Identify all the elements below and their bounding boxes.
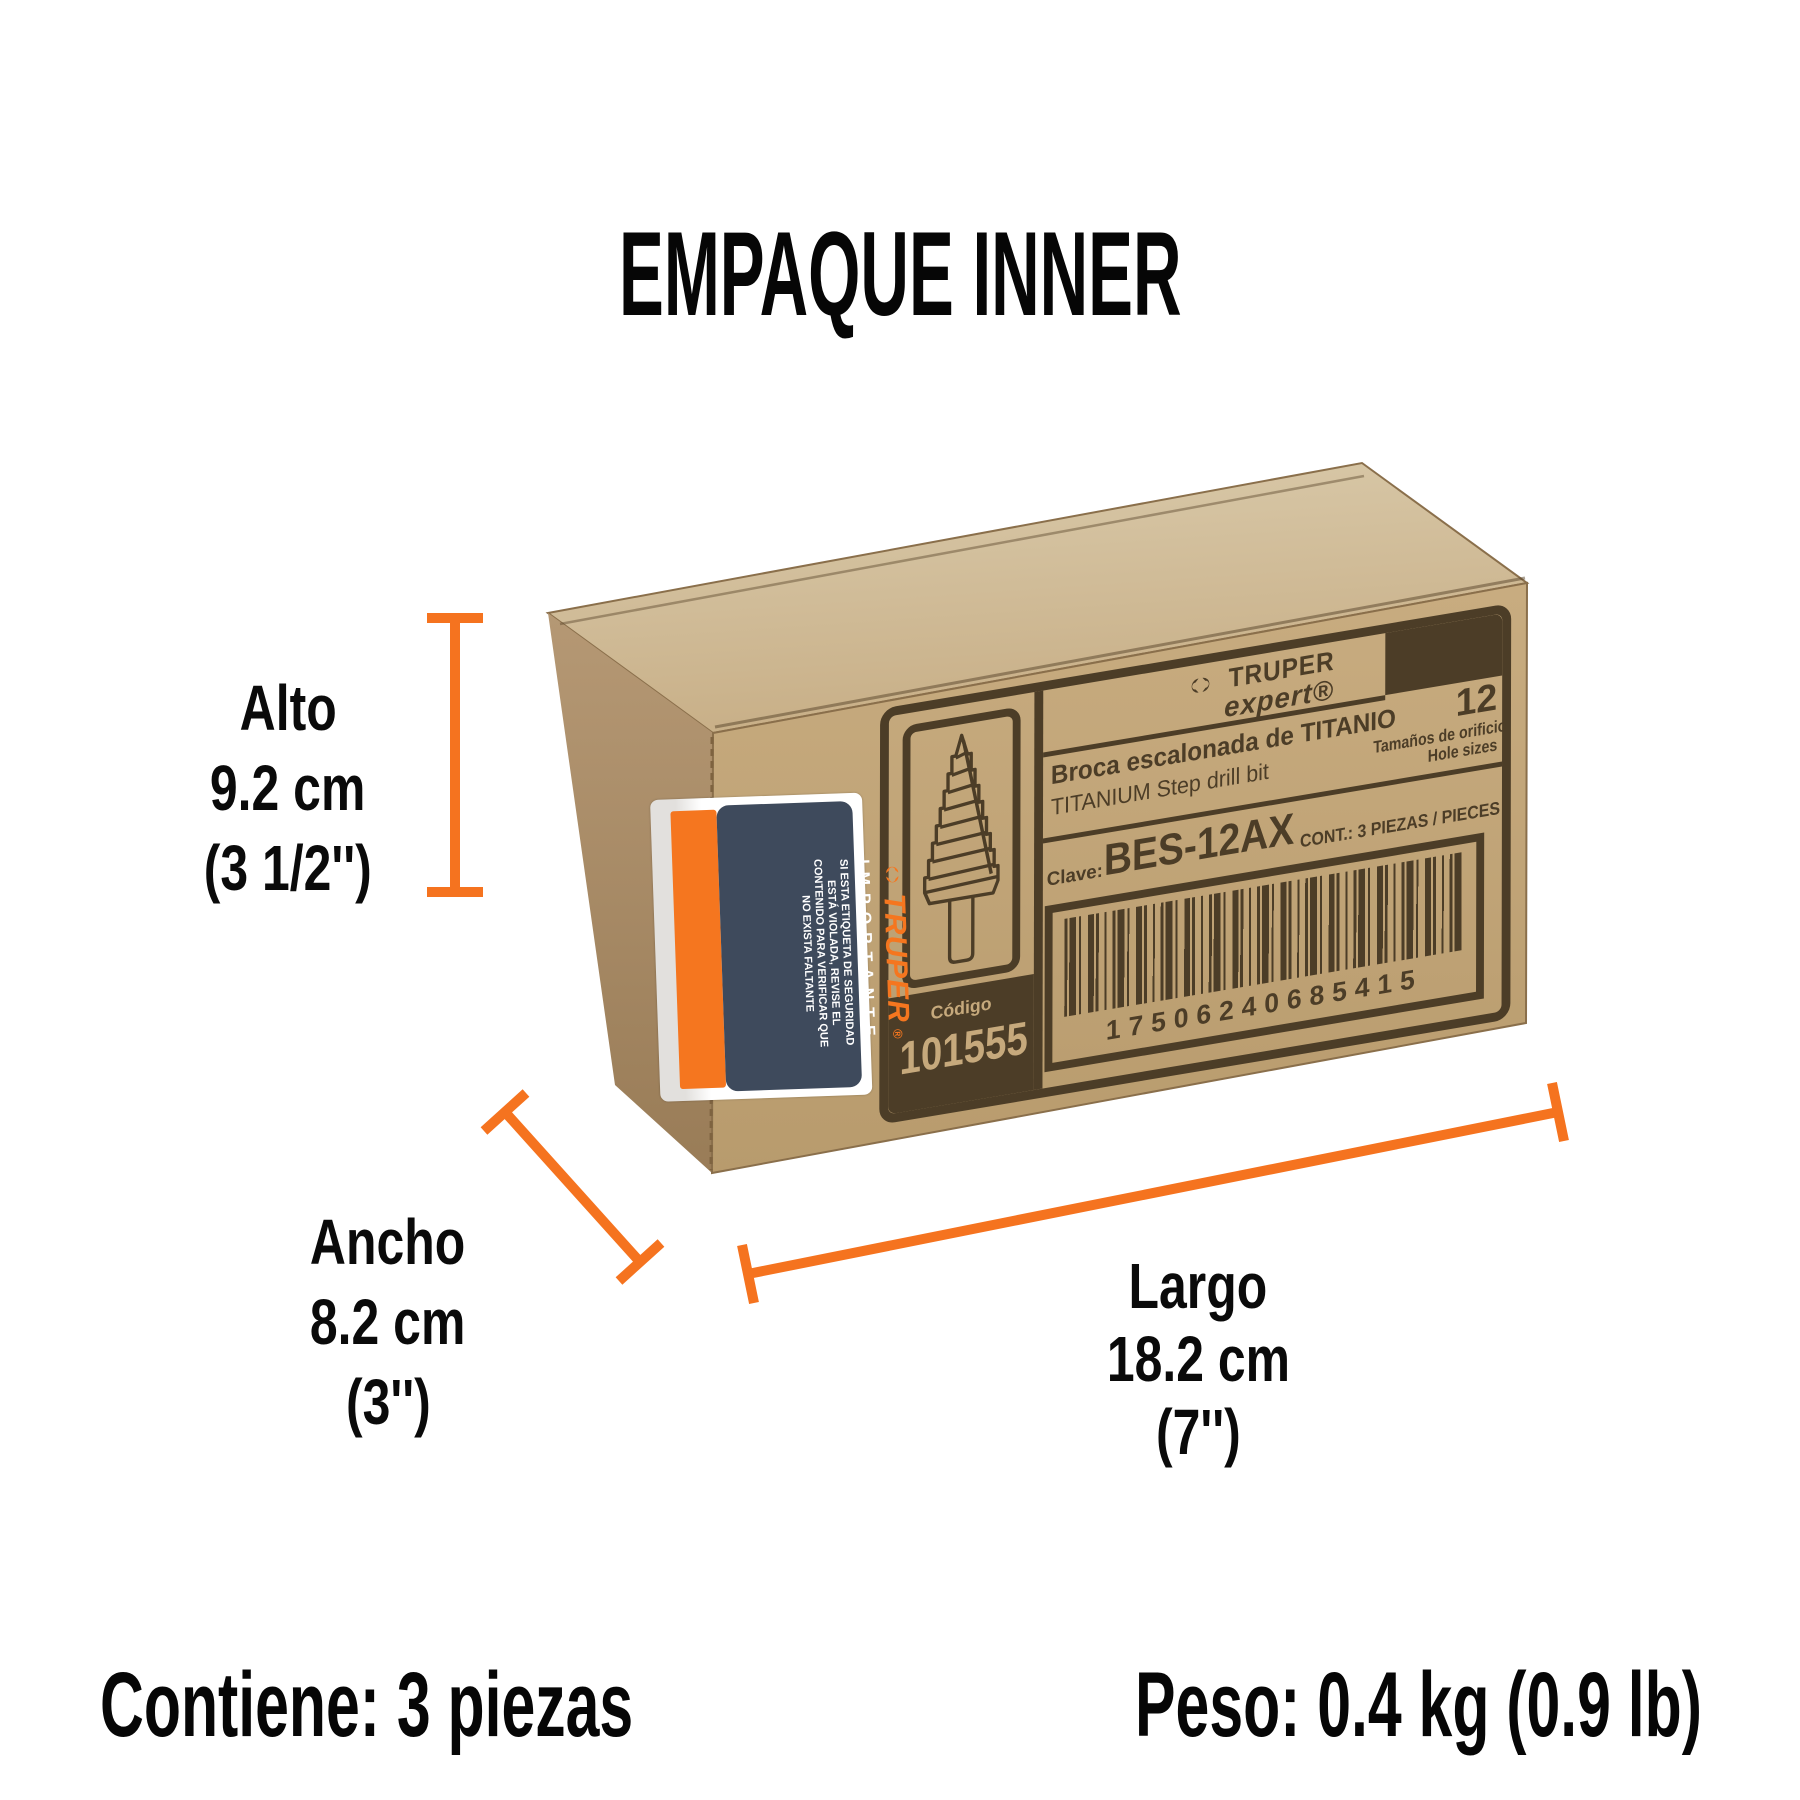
ancho-value-in: (3''): [346, 1362, 431, 1442]
weight-value: 0.4 kg (0.9 lb): [1317, 1654, 1702, 1756]
sticker-brand-name: TRUPER: [878, 893, 912, 1023]
packaging-dimensions-figure: EMPAQUE INNER: [0, 0, 1800, 1800]
sticker-reg-mark: ®: [892, 1029, 905, 1040]
ancho-label: Ancho: [310, 1202, 465, 1282]
alto-dimension-label: Alto 9.2 cm (3 1/2''): [118, 668, 458, 908]
alto-label: Alto: [239, 668, 336, 748]
weight-text: Peso: 0.4 kg (0.9 lb): [843, 1655, 1702, 1756]
sticker-navy-panel: TRUPER® IMPORTANTE SI ESTA ETIQUETA DE S…: [716, 801, 862, 1092]
label-right-column: TRUPER expert® Broca escalonada de TITAN…: [1042, 614, 1502, 1089]
ancho-value-cm: 8.2 cm: [310, 1282, 465, 1362]
sticker-brand-logo: TRUPER®: [877, 861, 913, 1040]
security-sticker: TRUPER® IMPORTANTE SI ESTA ETIQUETA DE S…: [650, 793, 872, 1102]
largo-value-cm: 18.2 cm: [1106, 1323, 1289, 1396]
sticker-warning-text: SI ESTA ETIQUETA DE SEGURIDAD ESTÁ VIOLA…: [797, 858, 856, 1048]
alto-value-cm: 9.2 cm: [210, 748, 365, 828]
sticker-rotated-content: TRUPER® IMPORTANTE SI ESTA ETIQUETA DE S…: [782, 807, 928, 1098]
largo-dimension-label: Largo 18.2 cm (7''): [998, 1250, 1398, 1469]
largo-value-in: (7''): [1156, 1396, 1241, 1469]
ancho-dimension-label: Ancho 8.2 cm (3''): [188, 1202, 588, 1442]
sticker-heading: IMPORTANTE: [853, 859, 877, 1044]
step-drill-icon: [910, 716, 1013, 981]
key-label: Clave:: [1047, 860, 1103, 891]
truper-knot-icon: [885, 861, 901, 888]
weight-label: Peso:: [1135, 1654, 1300, 1756]
truper-knot-icon: [1186, 675, 1216, 696]
contains-text: Contiene: 3 piezas: [100, 1655, 908, 1756]
contains-value: 3 piezas: [397, 1654, 633, 1756]
contains-label: Contiene:: [100, 1654, 380, 1756]
largo-label: Largo: [1129, 1250, 1268, 1323]
alto-value-in: (3 1/2''): [204, 828, 372, 908]
